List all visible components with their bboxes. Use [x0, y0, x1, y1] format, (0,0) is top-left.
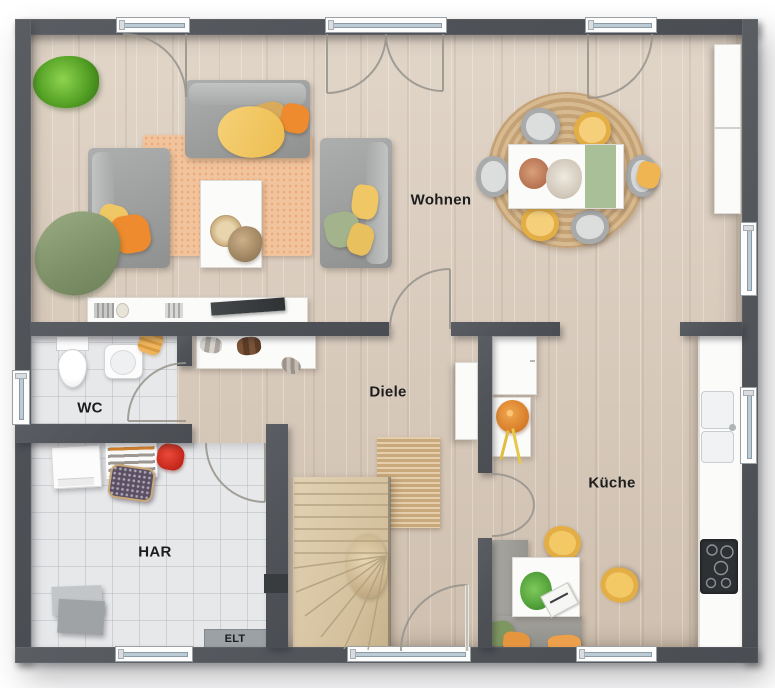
tall-cabinet-livingroom: [714, 44, 741, 214]
cooktop: [700, 539, 738, 594]
label-wohnen: Wohnen: [411, 192, 472, 209]
wall-wc-south: [15, 424, 192, 443]
fridge: [492, 336, 537, 395]
wall-wc-east: [177, 336, 192, 366]
centerpiece-bowl: [519, 158, 549, 189]
wall-livingroom-south-right: [680, 322, 742, 336]
wall-kitchen-west-upper: [478, 336, 492, 473]
dining-chair-gray-2: [476, 156, 511, 197]
window-top-living: [116, 17, 190, 33]
window-bottom-kitchen: [576, 646, 657, 662]
hall-cabinet: [455, 362, 478, 440]
wc-sink-basin: [110, 350, 136, 375]
fridge-door-line: [530, 360, 535, 362]
pampas-plant: [347, 534, 387, 598]
laundry-basket: [107, 463, 156, 503]
label-har: HAR: [138, 544, 171, 561]
storage-box-dark: [57, 599, 105, 635]
wall-livingroom-south-mid: [451, 322, 560, 336]
window-left-wc: [12, 370, 30, 425]
label-wc: WC: [77, 400, 103, 417]
kitchen-counter: [698, 335, 742, 648]
books-right: [165, 303, 183, 318]
kitchen-sink-basin-2: [701, 431, 734, 463]
duct-block: [264, 574, 288, 593]
table-runner: [585, 145, 616, 208]
kitchen-sink-basin-1: [701, 391, 734, 429]
wall-har-east: [266, 424, 288, 648]
tall-cabinet-divider: [715, 127, 740, 129]
wall-exterior-left: [15, 19, 31, 663]
label-diele: Diele: [369, 384, 406, 401]
plant-palm: [33, 56, 99, 108]
label-kueche: Küche: [588, 475, 635, 492]
wall-kitchen-west-lower: [478, 538, 492, 648]
candle-jar: [116, 303, 129, 318]
window-top-dining: [585, 17, 657, 33]
sofa-top-backrest: [189, 83, 306, 105]
kitchen-faucet: [729, 424, 736, 431]
entrance-door: [347, 646, 471, 662]
floor-plan: Wohnen Diele Küche WC HAR ELT: [0, 0, 775, 688]
terrace-door-top: [325, 17, 447, 33]
wall-livingroom-south-left: [31, 322, 389, 336]
window-right-kitchen: [740, 387, 757, 464]
books-left: [94, 303, 114, 318]
window-right-living: [740, 222, 757, 296]
window-bottom-har: [115, 646, 193, 662]
wall-exterior-right: [742, 19, 758, 663]
label-elt: ELT: [225, 633, 246, 645]
staircase-stringer: [388, 477, 391, 650]
